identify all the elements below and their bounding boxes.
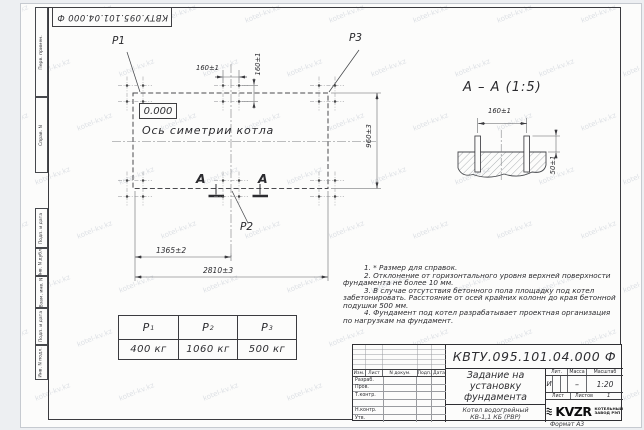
load-table-header-p3: P3 bbox=[237, 316, 296, 339]
margin-label: Инв. N подл. bbox=[39, 347, 44, 377]
sheets-label: Листов bbox=[575, 394, 593, 399]
load-point-p2-label: P2 bbox=[240, 221, 253, 233]
kvzr-logo-text: KVZR bbox=[555, 404, 591, 419]
sig-cell bbox=[431, 392, 446, 399]
margin-box-vzam-inv: Взам. инв. N bbox=[35, 276, 48, 308]
scale-header: Масштаб bbox=[587, 369, 623, 375]
revision-grid bbox=[353, 345, 446, 370]
hdr-ndokum: N докум. bbox=[383, 370, 418, 376]
dim-bolt-protrusion: 50±1 bbox=[549, 151, 557, 179]
margin-label: Взам. инв. N bbox=[39, 277, 44, 307]
company-name: КОТЕЛЬНЫЙ ЗАВОД РЭП bbox=[594, 407, 623, 416]
sig-label: Разраб. bbox=[353, 377, 383, 384]
section-letter-right: А bbox=[258, 171, 268, 186]
watermark-text: kotel-kv.kz bbox=[22, 219, 29, 240]
p-symbol: P bbox=[202, 321, 209, 334]
dim-bolt-spacing-x: 160±1 bbox=[196, 64, 219, 72]
sig-cell bbox=[416, 415, 431, 423]
scale-value: 1:20 bbox=[587, 376, 623, 392]
sig-cell bbox=[431, 385, 446, 392]
p-symbol: P bbox=[143, 321, 150, 334]
load-table-header-p2: P2 bbox=[178, 316, 237, 339]
margin-box-podp-data-1: Подп. и дата bbox=[35, 208, 48, 248]
sig-cell bbox=[383, 385, 416, 392]
signature-row: Т.контр. bbox=[353, 392, 446, 400]
dim-bolt-spacing-y: 160±1 bbox=[254, 49, 262, 79]
sig-label: Н.контр. bbox=[353, 407, 383, 414]
signature-row: Разраб. bbox=[353, 377, 446, 385]
sig-cell bbox=[431, 415, 446, 423]
load-table-value-p3: 500 кг bbox=[237, 339, 296, 359]
p-index: 2 bbox=[210, 324, 214, 332]
product-line: Котел водогрейный bbox=[446, 407, 545, 414]
lit-cell bbox=[561, 376, 568, 392]
sig-label: Утв. bbox=[353, 415, 383, 423]
note-line: по нагрузкам на фундамент. bbox=[343, 317, 623, 325]
hdr-list: Лист bbox=[366, 370, 383, 376]
hdr-data: Дата bbox=[432, 370, 446, 376]
p-symbol: P bbox=[261, 321, 268, 334]
signature-row: Пров. bbox=[353, 385, 446, 393]
sig-cell bbox=[383, 377, 416, 384]
sheets-cell: Листов1 bbox=[571, 393, 623, 399]
title-line: фундамента bbox=[446, 392, 545, 403]
lit-cell bbox=[553, 376, 560, 392]
load-point-p1-label: P1 bbox=[112, 35, 125, 47]
hdr-izm: Изм. bbox=[353, 370, 366, 376]
title-block-right: Лит. Масса Масштаб И – 1:20 Лист Листов1… bbox=[546, 369, 623, 422]
symmetry-axis-label: Ось симетрии котла bbox=[142, 124, 274, 137]
sig-cell bbox=[383, 407, 416, 414]
lit-header: Лит. bbox=[546, 369, 568, 375]
load-table-value-p2: 1060 кг bbox=[178, 339, 237, 359]
sig-cell bbox=[416, 377, 431, 384]
corner-number-stamp: КВТУ.095.101.04.000 Ф bbox=[52, 7, 172, 27]
sig-label: Пров. bbox=[353, 385, 383, 392]
mass-value: – bbox=[568, 376, 587, 392]
hdr-podp: Подп. bbox=[418, 370, 432, 376]
title-block-left: Изм. Лист N докум. Подп. Дата Разраб. Пр… bbox=[353, 345, 446, 422]
title-line: Задание на bbox=[446, 370, 545, 381]
sig-cell bbox=[416, 407, 431, 414]
sig-cell bbox=[383, 392, 416, 399]
section-letter-left: А bbox=[196, 171, 206, 186]
dim-left-to-center: 1365±2 bbox=[156, 246, 186, 255]
margin-box-inv-podl: Инв. N подл. bbox=[35, 345, 48, 380]
sig-cell bbox=[383, 400, 416, 407]
signature-rows: Разраб. Пров. Т.контр. Н.контр. Утв. bbox=[353, 377, 446, 422]
watermark-text: kotel-kv.kz bbox=[22, 327, 29, 348]
margin-box-perv-primen: Перв. примен. bbox=[35, 7, 48, 97]
load-table: P1 P2 P3 400 кг 1060 кг 500 кг bbox=[118, 315, 297, 360]
level-mark-box: 0.000 bbox=[139, 103, 177, 119]
load-table-header-p1: P1 bbox=[119, 316, 178, 339]
p-index: 3 bbox=[269, 324, 273, 332]
margin-box-sprav-n: Справ. N bbox=[35, 97, 48, 173]
dim-section-bolt-spacing: 160±1 bbox=[488, 107, 511, 115]
watermark-text: kotel-kv.kz bbox=[622, 165, 640, 186]
margin-label: Инв. N дубл. bbox=[39, 247, 44, 277]
signature-row: Н.контр. bbox=[353, 407, 446, 415]
title-line: установку bbox=[446, 381, 545, 392]
margin-label: Подп. и дата bbox=[39, 311, 44, 342]
lit-value: И bbox=[546, 376, 553, 392]
kvzr-logo-icon bbox=[546, 405, 552, 418]
watermark-text: kotel-kv.kz bbox=[22, 111, 29, 132]
load-table-value-p1: 400 кг bbox=[119, 339, 178, 359]
margin-label: Справ. N bbox=[39, 124, 44, 145]
product-name: Котел водогрейный КВ-1,1 КБ (РВР) bbox=[446, 404, 546, 422]
load-point-p3-label: P3 bbox=[349, 32, 362, 44]
watermark-text: kotel-kv.kz bbox=[622, 381, 640, 402]
drawing-sheet-page: { "watermark": { "text": "kotel-kv.kz" }… bbox=[0, 0, 644, 430]
section-view-title: А – А (1:5) bbox=[463, 80, 542, 95]
document-number: КВТУ.095.101.04.000 Ф bbox=[446, 345, 623, 369]
sig-cell bbox=[416, 400, 431, 407]
sig-cell bbox=[431, 407, 446, 414]
sig-label bbox=[353, 400, 383, 407]
company-line: ЗАВОД РЭП bbox=[594, 411, 623, 415]
p-index: 1 bbox=[150, 324, 154, 332]
sig-cell bbox=[383, 415, 416, 423]
sheet-label: Лист bbox=[546, 393, 571, 399]
change-header-row: Изм. Лист N докум. Подп. Дата bbox=[353, 370, 446, 377]
watermark-text: kotel-kv.kz bbox=[622, 57, 640, 78]
format-label: Формат А3 bbox=[550, 421, 584, 428]
margin-label: Перв. примен. bbox=[39, 35, 44, 70]
drawing-title: Задание на установку фундамента bbox=[446, 369, 546, 404]
sig-cell bbox=[431, 377, 446, 384]
title-block: Изм. Лист N докум. Подп. Дата Разраб. Пр… bbox=[352, 344, 622, 421]
lit-mass-scale-values: И – 1:20 bbox=[546, 376, 623, 393]
margin-box-podp-data-2: Подп. и дата bbox=[35, 308, 48, 345]
sig-cell bbox=[416, 385, 431, 392]
company-logo-cell: KVZR КОТЕЛЬНЫЙ ЗАВОД РЭП bbox=[546, 400, 623, 422]
notes-block: 1. * Размер для справок. 2. Отклонение о… bbox=[343, 264, 623, 324]
sheet-row: Лист Листов1 bbox=[546, 393, 623, 400]
product-line: КВ-1,1 КБ (РВР) bbox=[446, 414, 545, 421]
level-mark-value: 0.000 bbox=[144, 106, 173, 117]
corner-number-text: КВТУ.095.101.04.000 Ф bbox=[57, 12, 168, 22]
sheets-value: 1 bbox=[607, 393, 611, 399]
signature-row: Утв. bbox=[353, 415, 446, 423]
dim-overall-length: 2810±3 bbox=[203, 266, 233, 275]
watermark-text: kotel-kv.kz bbox=[622, 273, 640, 294]
lit-mass-scale-header: Лит. Масса Масштаб bbox=[546, 369, 623, 376]
sig-cell bbox=[431, 400, 446, 407]
watermark-text: kotel-kv.kz bbox=[22, 4, 29, 25]
mass-header: Масса bbox=[568, 369, 587, 375]
dim-foundation-width: 960±3 bbox=[365, 119, 373, 153]
margin-box-inv-dubl: Инв. N дубл. bbox=[35, 248, 48, 276]
signature-row bbox=[353, 400, 446, 408]
sig-cell bbox=[416, 392, 431, 399]
margin-label: Подп. и дата bbox=[39, 212, 44, 243]
sig-label: Т.контр. bbox=[353, 392, 383, 399]
